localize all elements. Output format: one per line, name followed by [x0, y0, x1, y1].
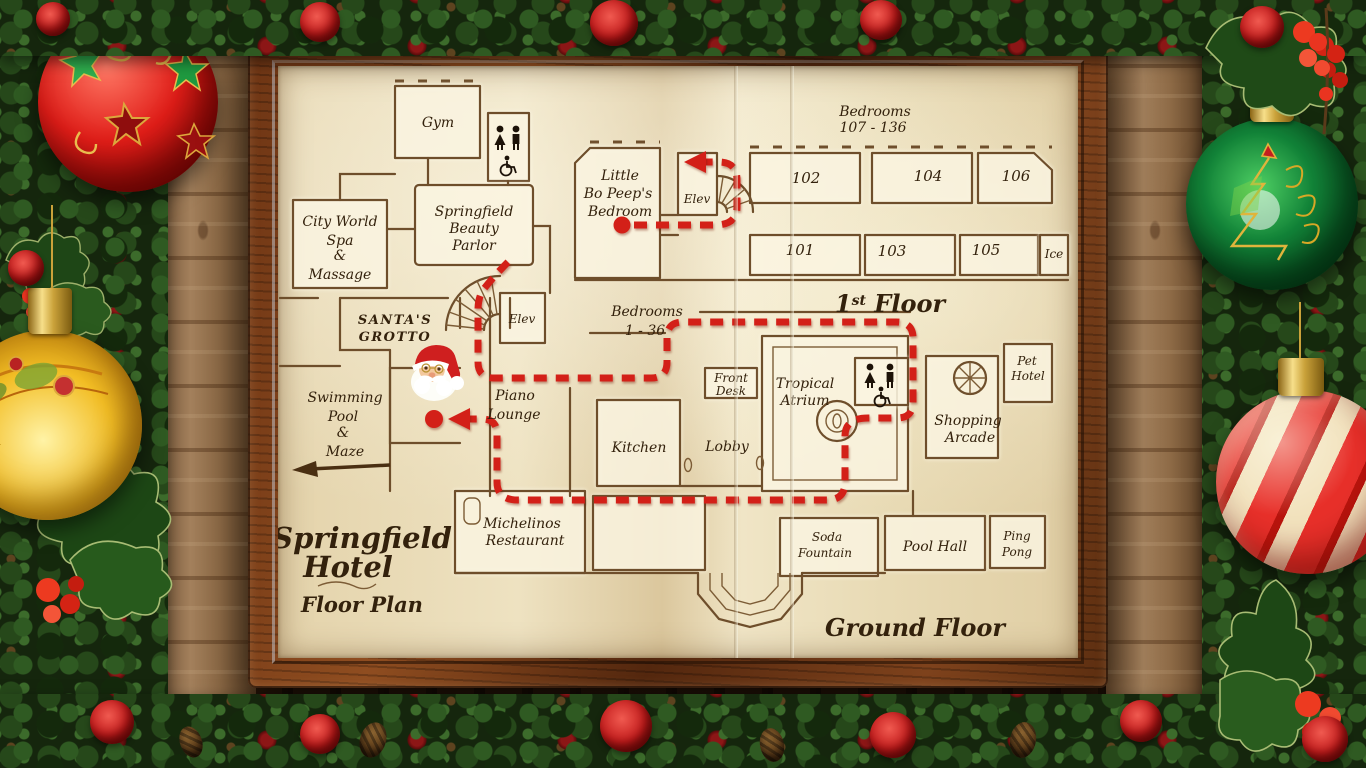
scene: Gym City World Spa & Massage Springfield…: [0, 0, 1366, 768]
label-floor-plan: Floor Plan: [300, 592, 423, 617]
label-kitchen: Kitchen: [611, 440, 667, 456]
label-michelinos-1: Michelinos: [482, 516, 561, 532]
leaf-glow: [1230, 176, 1262, 216]
label-pet-2: Hotel: [1010, 369, 1045, 383]
pool-direction-arrow: [292, 461, 390, 477]
label-room-101: 101: [786, 241, 815, 259]
spiral-stairs-arcade: [954, 362, 986, 394]
holly-berry: [68, 576, 84, 592]
garland-bottom: [0, 694, 1366, 768]
label-piano-2: Lounge: [486, 407, 540, 423]
label-bedrooms-first-1: Bedrooms: [838, 104, 911, 120]
label-spa-1: City World: [302, 214, 377, 230]
label-frontdesk-1: Front: [713, 371, 748, 385]
red-star: [106, 104, 148, 144]
ornament-gold-ball: [0, 330, 142, 520]
holly-berry: [1327, 45, 1345, 63]
holly-berry: [36, 578, 60, 602]
rose-flower: [1240, 6, 1284, 48]
label-spa-3: &: [334, 248, 346, 264]
map-frame[interactable]: Gym City World Spa & Massage Springfield…: [248, 36, 1108, 688]
holly-berry: [43, 605, 61, 623]
label-beauty-1: Springfield: [435, 204, 514, 220]
rose-flower: [860, 0, 902, 40]
label-bopeep-3: Bedroom: [587, 204, 652, 220]
garland-top: [0, 0, 1366, 56]
rose-flower: [90, 700, 134, 744]
label-beauty-2: Beauty: [448, 221, 500, 237]
ornament-string: [51, 205, 53, 291]
holly-berry: [60, 594, 80, 614]
label-pet-1: Pet: [1016, 354, 1037, 368]
label-bedrooms-ground-1: Bedrooms: [610, 304, 683, 320]
label-soda-1: Soda: [812, 530, 842, 544]
rose-flower: [300, 2, 340, 42]
floor-plan-paper: Gym City World Spa & Massage Springfield…: [278, 66, 1078, 658]
label-bedrooms-first-2: 107 - 136: [839, 120, 906, 136]
label-beauty-3: Parlor: [451, 238, 497, 254]
label-pool-4: Maze: [325, 444, 364, 460]
label-piano-1: Piano: [494, 388, 535, 404]
label-pingpong-1: Ping: [1002, 529, 1031, 543]
label-bopeep-2: Bo Peep's: [583, 186, 653, 202]
rose-flower: [870, 712, 916, 758]
label-ground-floor: Ground Floor: [825, 613, 1007, 642]
label-room-102: 102: [792, 169, 821, 187]
red-star: [178, 124, 214, 158]
label-first-floor: 1st Floor: [835, 289, 948, 318]
holly-berry: [1295, 691, 1321, 717]
green-star: [166, 50, 208, 90]
holly-berry: [1319, 87, 1333, 101]
label-frontdesk-2: Desk: [715, 384, 746, 398]
ornament-string: [1299, 302, 1301, 360]
berry-sprig-right: [1296, 8, 1366, 138]
label-hotel-title-2: Hotel: [302, 550, 393, 584]
rose-flower: [300, 714, 340, 754]
rose-flower: [36, 2, 70, 36]
label-soda-2: Fountain: [797, 546, 852, 560]
label-michelinos-2: Restaurant: [485, 533, 565, 549]
label-pool-3: &: [337, 425, 349, 441]
holly-berry: [1309, 33, 1327, 51]
label-room-103: 103: [878, 242, 907, 260]
label-elev-first: Elev: [683, 192, 711, 206]
rose-flower: [1120, 700, 1162, 742]
label-grotto-2: GROTTO: [359, 330, 431, 345]
label-room-105: 105: [972, 241, 1001, 259]
label-atrium-1: Tropical: [776, 376, 835, 392]
rose-flower: [8, 250, 44, 286]
label-poolhall: Pool Hall: [902, 539, 967, 555]
route-arrow-grotto: [448, 408, 470, 430]
red-berry: [9, 357, 23, 371]
label-bopeep-1: Little: [600, 168, 639, 184]
rose-flower: [590, 0, 638, 46]
label-elev-ground: Elev: [508, 312, 536, 326]
holly-berry: [1314, 60, 1330, 76]
ornament-cap: [28, 288, 72, 334]
label-arcade-1: Shopping: [934, 413, 1001, 429]
label-gym: Gym: [422, 115, 454, 131]
label-room-106: 106: [1002, 167, 1031, 185]
label-room-104: 104: [914, 167, 943, 185]
route-end-dot: [425, 410, 443, 428]
label-atrium-2: Atrium: [779, 393, 830, 409]
label-lobby: Lobby: [704, 439, 750, 455]
label-pool-1: Swimming: [307, 390, 382, 406]
gold-curls: [1286, 166, 1319, 243]
label-grotto-1: SANTA'S: [358, 313, 432, 328]
leaf: [0, 378, 10, 410]
floor-plan: Gym City World Spa & Massage Springfield…: [278, 66, 1078, 658]
label-arcade-2: Arcade: [943, 430, 995, 446]
rose-flower: [1302, 716, 1348, 762]
ornament-cap: [1278, 358, 1324, 396]
label-spa-2: Spa: [327, 233, 354, 249]
label-ice: Ice: [1044, 247, 1064, 261]
label-bedrooms-ground-2: 1 - 36: [625, 323, 665, 339]
label-spa-4: Massage: [308, 267, 372, 283]
label-pool-2: Pool: [327, 409, 358, 425]
santa-face-icon: [411, 345, 464, 401]
rose-flower: [600, 700, 652, 752]
label-pingpong-2: Pong: [1001, 545, 1033, 559]
red-berry: [54, 376, 74, 396]
holly-berry: [1332, 72, 1348, 88]
